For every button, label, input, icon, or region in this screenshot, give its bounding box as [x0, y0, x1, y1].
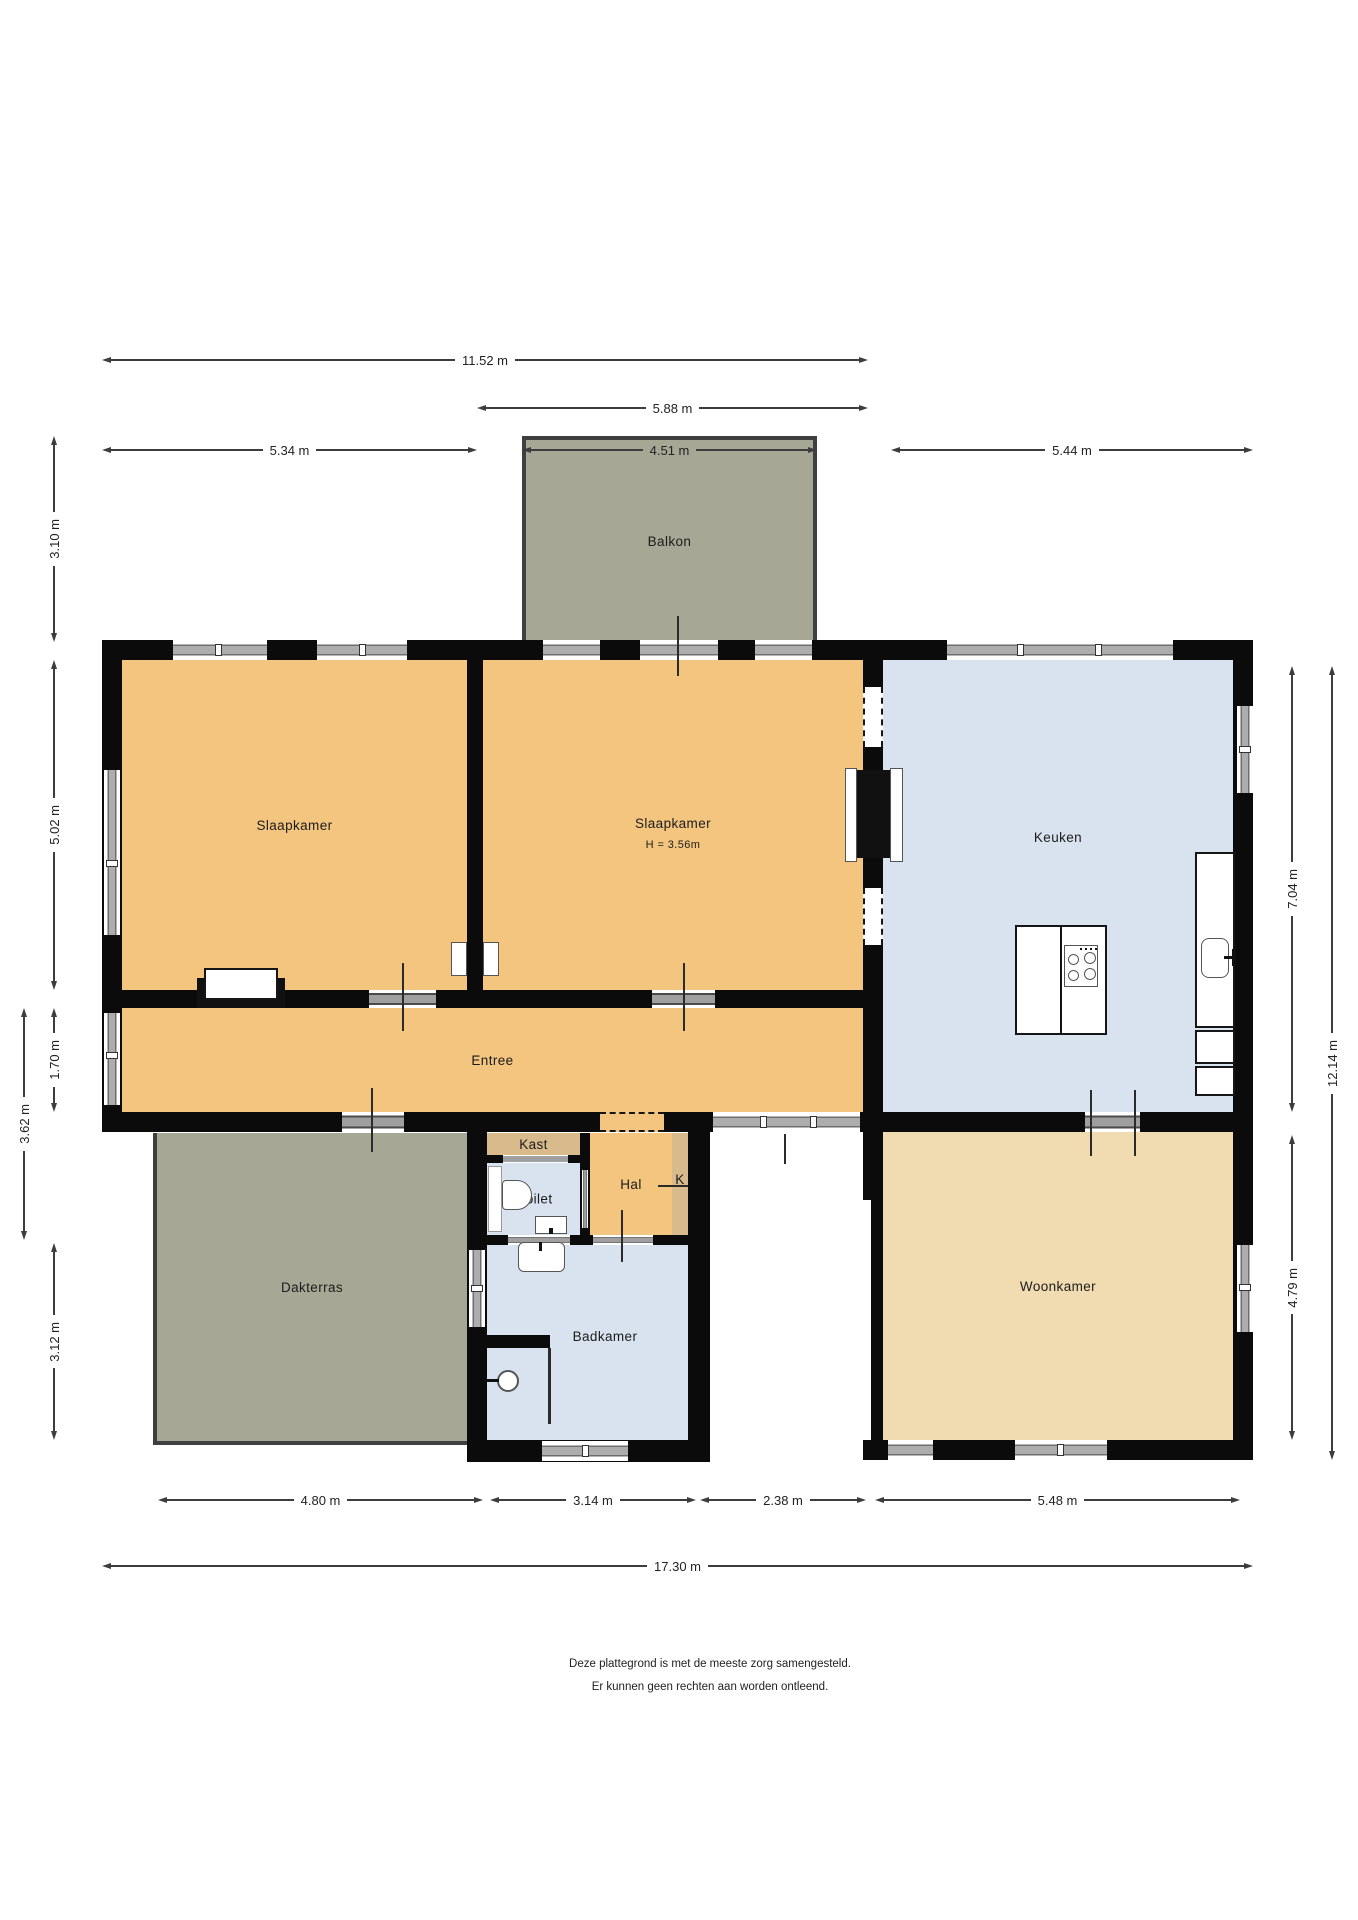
room-slaapkamer-midden: Slaapkamer H = 3.56m — [483, 660, 863, 990]
stove-burner — [1068, 954, 1079, 965]
window-mullion — [471, 1285, 483, 1292]
window-mullion — [215, 644, 222, 656]
dimension-5-48: 5.48 m — [875, 1490, 1240, 1510]
opening-entree-hal — [600, 1112, 664, 1132]
window-mullion — [1017, 644, 1024, 656]
window-mullion — [106, 1052, 118, 1059]
wall-woonkamer-left-upper — [863, 1132, 883, 1200]
room-label-dakterras: Dakterras — [281, 1280, 343, 1295]
wardrobe — [204, 968, 278, 1000]
shower-head — [497, 1370, 519, 1392]
room-label-badkamer: Badkamer — [573, 1329, 638, 1344]
disclaimer-line1: Deze plattegrond is met de meeste zorg s… — [150, 1653, 1270, 1676]
window-mullion — [106, 860, 118, 867]
dimension-5-34: 5.34 m — [102, 440, 477, 460]
window — [755, 640, 812, 660]
opening-mark-vide — [784, 1134, 786, 1164]
window-mullion — [359, 644, 366, 656]
wall-badkamer-right — [688, 1132, 710, 1462]
window — [104, 770, 120, 935]
opening-keuken-upper — [863, 687, 883, 747]
dimension-3-12: 3.12 m — [44, 1243, 64, 1440]
dimension-11-52: 11.52 m — [102, 350, 868, 370]
opening-keuken-lower — [863, 888, 883, 945]
dimension-4-80: 4.80 m — [158, 1490, 483, 1510]
balcony-door — [640, 640, 718, 660]
window-mullion — [1239, 746, 1251, 753]
wall-toilet-hal-bottom — [467, 1235, 710, 1245]
room-height-note: H = 3.56m — [646, 839, 701, 851]
room-woonkamer: Woonkamer — [883, 1132, 1233, 1440]
room-kast: Kast — [487, 1133, 580, 1155]
kitchen-faucet-handle — [1232, 949, 1236, 966]
opening-mark-hal-badkamer — [621, 1210, 623, 1262]
disclaimer-line2: Er kunnen geen rechten aan worden ontlee… — [150, 1676, 1270, 1699]
wall-woonkamer-left-lower — [871, 1200, 883, 1440]
kitchen-appliance — [1195, 1066, 1235, 1096]
kitchen-appliance — [1195, 1030, 1235, 1064]
room-label-kast: Kast — [519, 1137, 548, 1152]
window-mullion — [1239, 1284, 1251, 1291]
door-dakterras — [342, 1112, 404, 1132]
wall-entree-keuken-bottom — [102, 1112, 1253, 1132]
opening-mark-slaapkamer-midden — [683, 963, 685, 1031]
stove-knob — [1090, 948, 1092, 950]
chimney-niche-left — [845, 768, 857, 862]
room-label-keuken: Keuken — [1034, 830, 1082, 845]
wall-niche — [483, 942, 499, 976]
window-mullion — [760, 1116, 767, 1128]
room-balkon: Balkon — [522, 436, 817, 642]
window-mullion — [1095, 644, 1102, 656]
dimension-5-02: 5.02 m — [44, 660, 64, 990]
dimension-5-88: 5.88 m — [477, 398, 868, 418]
opening-mark-dakterras — [371, 1088, 373, 1152]
room-label-balkon: Balkon — [648, 534, 692, 549]
window — [947, 640, 1173, 660]
room-label-slaapkamer-links: Slaapkamer — [256, 818, 332, 833]
shower-glass — [548, 1348, 551, 1424]
window-woonkamer — [888, 1440, 933, 1460]
dimension-3-10: 3.10 m — [44, 436, 64, 642]
stove-knob — [1080, 948, 1082, 950]
stove — [1064, 945, 1098, 987]
shower-arm — [487, 1379, 499, 1382]
opening-mark-balkon — [677, 616, 679, 676]
window-mullion — [1057, 1444, 1064, 1456]
chimney-block — [857, 770, 890, 858]
room-keuken: Keuken — [883, 660, 1233, 1112]
disclaimer: Deze plattegrond is met de meeste zorg s… — [150, 1653, 1270, 1699]
door-keuken-woonkamer — [1085, 1112, 1140, 1132]
shower-wall-stub — [487, 1335, 550, 1348]
room-entree: Entree — [122, 1008, 863, 1112]
bathroom-sink-tap — [539, 1242, 542, 1251]
floorplan: Balkon Slaapkamer Slaapkamer H = 3.56m K… — [0, 0, 1358, 1920]
room-label-slaapkamer-midden: Slaapkamer — [635, 816, 711, 831]
opening-mark-slaapkamer-links — [402, 963, 404, 1031]
toilet-bowl — [502, 1180, 532, 1210]
window — [104, 1013, 120, 1105]
dimension-3-62: 3.62 m — [14, 1008, 34, 1240]
opening-mark-hal-kast — [658, 1185, 688, 1187]
balcony-door — [543, 640, 600, 660]
dimension-4-79: 4.79 m — [1282, 1135, 1302, 1440]
room-slaapkamer-links: Slaapkamer — [122, 660, 467, 990]
stove-burner — [1068, 970, 1079, 981]
window-mullion — [810, 1116, 817, 1128]
dimension-5-44: 5.44 m — [891, 440, 1253, 460]
wall-bedroom-divider — [467, 660, 483, 990]
window-mullion — [582, 1445, 589, 1457]
stove-knob — [1095, 948, 1097, 950]
wall-niche — [451, 942, 467, 976]
room-kast-k: K — [672, 1133, 688, 1235]
dimension-7-04: 7.04 m — [1282, 666, 1302, 1112]
dimension-3-14: 3.14 m — [490, 1490, 696, 1510]
dimension-17-30: 17.30 m — [102, 1556, 1253, 1576]
room-dakterras: Dakterras — [153, 1133, 467, 1445]
room-label-hal: Hal — [620, 1177, 641, 1192]
toilet-sink-tap — [549, 1228, 553, 1234]
room-label-woonkamer: Woonkamer — [1020, 1279, 1096, 1294]
dimension-4-51: 4.51 m — [522, 440, 817, 460]
opening-mark-keuken-woonkamer — [1134, 1090, 1136, 1156]
toilet-cistern — [488, 1166, 502, 1232]
stove-burner — [1084, 968, 1096, 980]
door-kast — [503, 1155, 568, 1163]
window-vide — [713, 1112, 860, 1132]
chimney-niche-right — [890, 768, 903, 862]
door-hal-badkamer — [593, 1235, 653, 1245]
dimension-12-14: 12.14 m — [1322, 666, 1342, 1460]
room-label-entree: Entree — [471, 1053, 513, 1068]
door-toilet — [582, 1170, 588, 1228]
opening-mark-keuken-woonkamer — [1090, 1090, 1092, 1156]
room-hal: Hal — [590, 1133, 672, 1235]
kitchen-island-divider — [1060, 925, 1062, 1035]
stove-knob — [1085, 948, 1087, 950]
stove-burner — [1084, 952, 1096, 964]
dimension-1-70: 1.70 m — [44, 1008, 64, 1112]
dimension-2-38: 2.38 m — [700, 1490, 866, 1510]
